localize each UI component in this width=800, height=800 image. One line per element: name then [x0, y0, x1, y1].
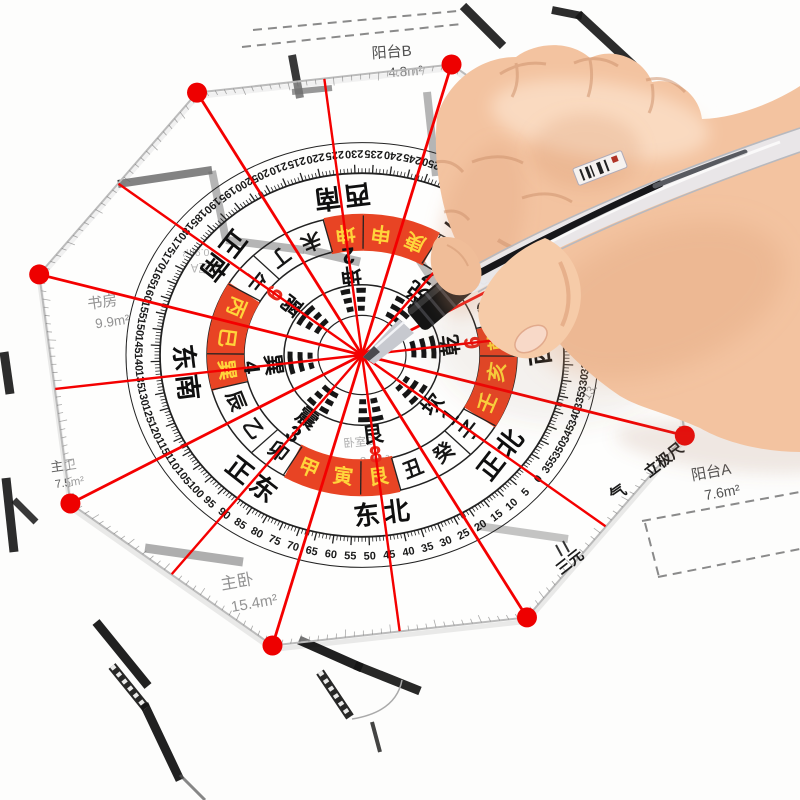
degree-tick	[156, 374, 161, 375]
degree-label: 55	[344, 550, 357, 563]
degree-label: 235	[364, 147, 383, 160]
degree-label: 50	[363, 550, 376, 562]
photo-scene: 阳台B4.8m²书房9.9m²主卫7.5m²主卧15.4m²卧室B8.0m²卧室…	[0, 0, 800, 800]
degree-tick	[340, 169, 341, 174]
bagua-yao-broken	[347, 309, 354, 310]
degree-label: 150	[133, 317, 147, 337]
red-corner-dot	[262, 636, 282, 656]
degree-label: 240	[383, 148, 403, 162]
degree-tick	[156, 335, 161, 336]
mountain-char-red: 寅	[331, 463, 354, 490]
mountain-char-red: 巳	[214, 326, 239, 349]
red-corner-dot	[187, 83, 207, 103]
photo-feng-shui-ruler: 阳台B4.8m²书房9.9m²主卫7.5m²主卧15.4m²卧室B8.0m²卧室…	[0, 0, 800, 800]
wall-segment	[4, 352, 10, 394]
bagua-yao-broken	[311, 363, 313, 369]
bagua-yao-broken	[344, 300, 352, 302]
red-corner-dot	[517, 607, 537, 627]
degree-tick	[383, 169, 384, 174]
bagua-yao-broken	[404, 377, 408, 382]
degree-label: 230	[345, 147, 364, 160]
red-corner-dot	[60, 493, 80, 513]
degree-label: 140	[132, 353, 145, 372]
degree-label: 145	[132, 335, 145, 354]
degree-label: 40	[401, 545, 415, 559]
mountain-char-red: 申	[369, 221, 392, 248]
bagua-yao-broken	[326, 400, 333, 404]
degree-tick	[383, 536, 384, 541]
degree-label: 60	[324, 548, 338, 562]
bagua-yao-broken	[372, 408, 380, 410]
red-corner-dot	[29, 264, 49, 284]
room-label: 阳台B	[371, 43, 412, 63]
red-corner-dot	[442, 54, 462, 74]
degree-tick	[340, 536, 341, 541]
bagua-yao-broken	[341, 291, 350, 293]
bagua-yao-broken	[371, 400, 378, 401]
bagua-yao-broken	[397, 385, 402, 389]
